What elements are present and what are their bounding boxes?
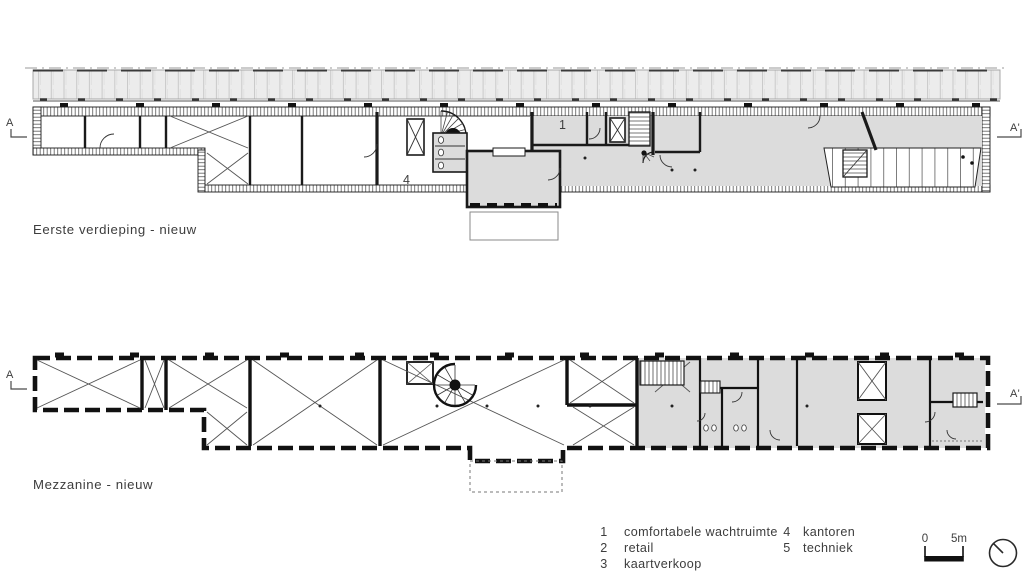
legend-label: retail	[624, 541, 654, 555]
legend-num: 1	[600, 525, 607, 539]
first-floor-plan: 4 1 A A' Eerste verdieping - nieuw	[6, 68, 1021, 240]
north-arrow-icon	[990, 540, 1017, 567]
architectural-drawing-sheet: 4 1 A A' Eerste verdieping - nieuw	[0, 0, 1030, 579]
legend-num: 5	[783, 541, 790, 555]
legend-num: 4	[783, 525, 790, 539]
section-mark-line	[11, 381, 27, 389]
legend: 1 comfortabele wachtruimte 2 retail 3 ka…	[600, 525, 855, 571]
scale-zero-label: 0	[922, 533, 928, 545]
section-marker-a: A	[6, 117, 14, 129]
staircase	[640, 361, 684, 385]
mezzanine-title: Mezzanine - nieuw	[33, 477, 153, 492]
first-floor-title: Eerste verdieping - nieuw	[33, 222, 197, 237]
canopy-projection-dashed	[470, 461, 562, 492]
scale-bar: 0 5m	[922, 533, 967, 562]
spiral-stair	[434, 364, 476, 406]
step-wall	[198, 150, 205, 192]
toilet-block	[433, 133, 467, 172]
legend-label: comfortabele wachtruimte	[624, 525, 778, 539]
interior-walls-thick	[142, 358, 637, 446]
scale-ticks	[925, 546, 963, 557]
wing-south-wall	[33, 148, 205, 155]
elevator-shaft	[858, 362, 886, 400]
elevator-shaft	[858, 414, 886, 444]
platform-canopy	[33, 70, 1000, 99]
legend-label: kaartverkoop	[624, 557, 702, 571]
floor-plans-svg: 4 1 A A' Eerste verdieping - nieuw	[0, 0, 1030, 579]
staircase	[629, 112, 650, 146]
section-mark-line	[11, 129, 27, 137]
section-marker-a: A	[6, 369, 14, 381]
north-facade-wall	[33, 107, 990, 116]
scale-bar-fill	[924, 556, 964, 562]
east-wall	[982, 107, 990, 192]
elevator-shaft	[407, 119, 424, 155]
legend-num: 2	[600, 541, 607, 555]
legend-label: techniek	[803, 541, 853, 555]
section-marker-a-prime: A'	[1010, 122, 1020, 134]
elevator-shaft	[610, 118, 625, 142]
staircase	[953, 393, 977, 407]
entrance-pavilion	[467, 148, 560, 240]
legend-label: kantoren	[803, 525, 855, 539]
scale-five-label: 5m	[951, 533, 967, 545]
roof-dot	[970, 161, 974, 165]
cross-brace-lines	[37, 360, 690, 445]
staircase	[700, 381, 720, 393]
legend-num: 3	[600, 557, 607, 571]
roof-dot	[961, 155, 965, 159]
room-number-kantoren: 4	[403, 173, 410, 187]
section-marker-a-prime: A'	[1010, 388, 1020, 400]
staircase	[843, 150, 867, 177]
room-number-wachtruimte: 1	[559, 118, 566, 132]
mezzanine-plan: A A' Mezzanine - nieuw	[6, 355, 1021, 492]
